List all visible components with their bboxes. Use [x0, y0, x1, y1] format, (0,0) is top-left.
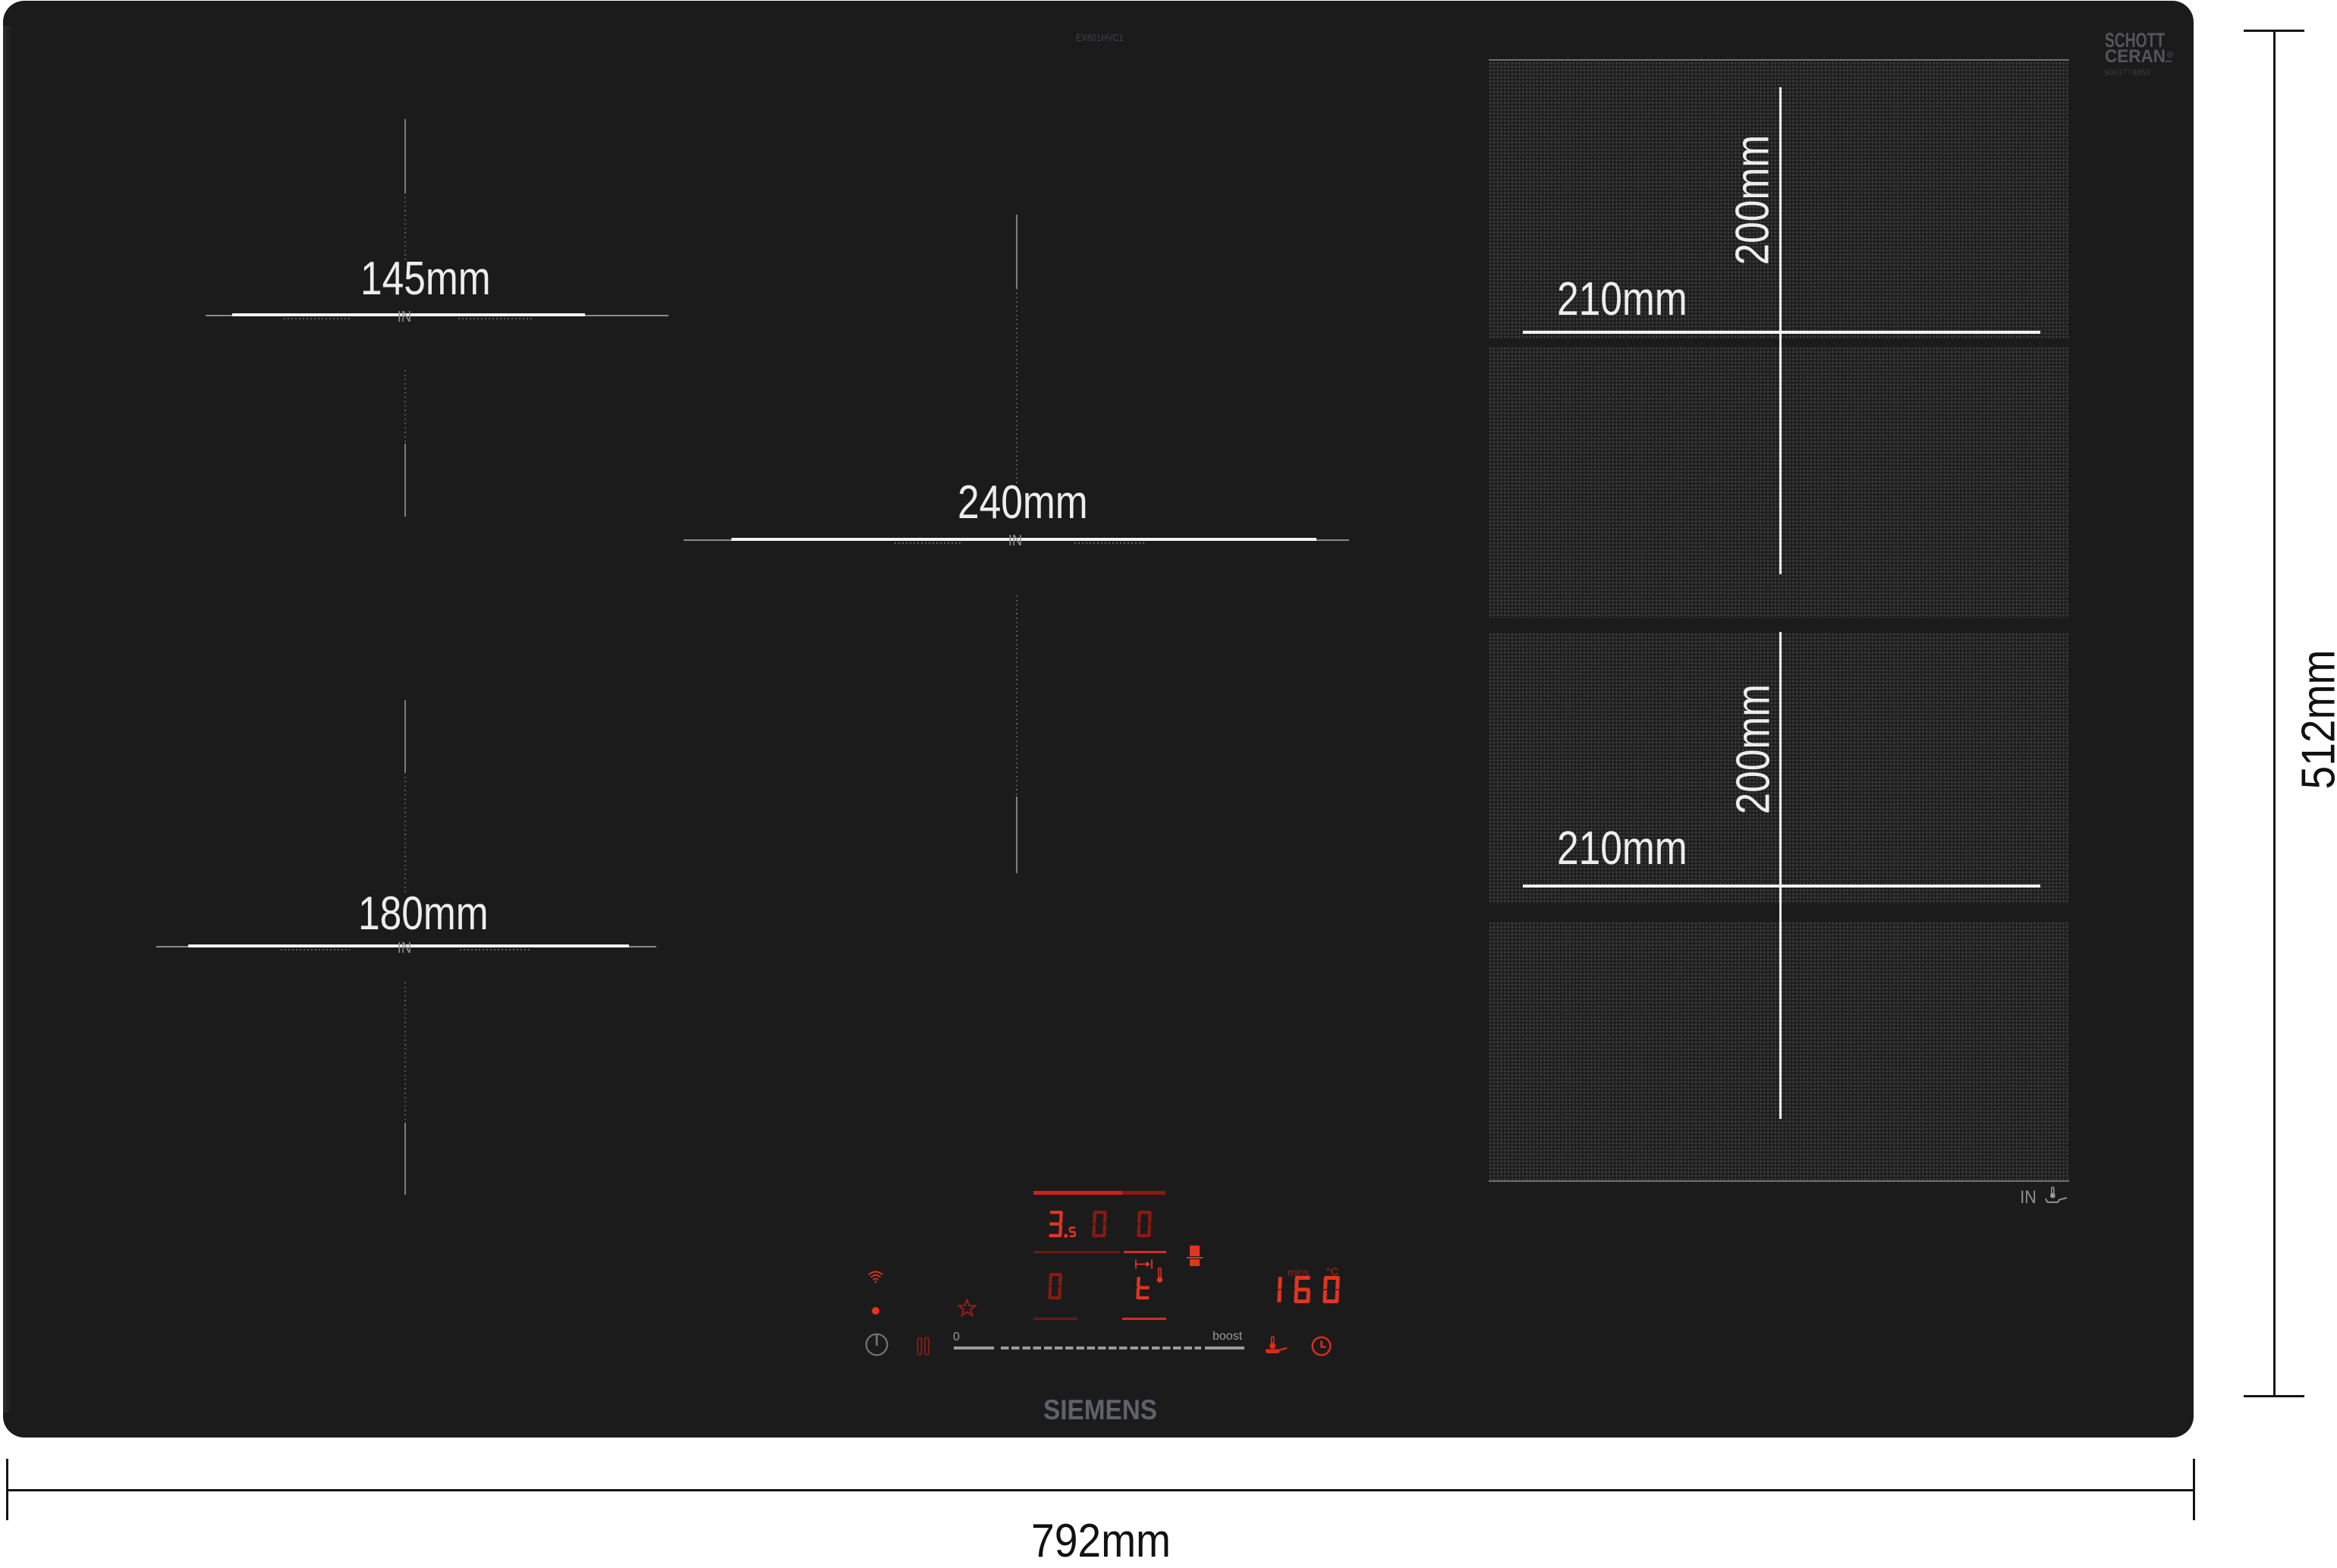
- svg-text:CERAN: CERAN: [2105, 46, 2166, 67]
- svg-text:SIEMENS: SIEMENS: [1043, 1396, 1157, 1423]
- svg-text:®: ®: [2167, 51, 2173, 60]
